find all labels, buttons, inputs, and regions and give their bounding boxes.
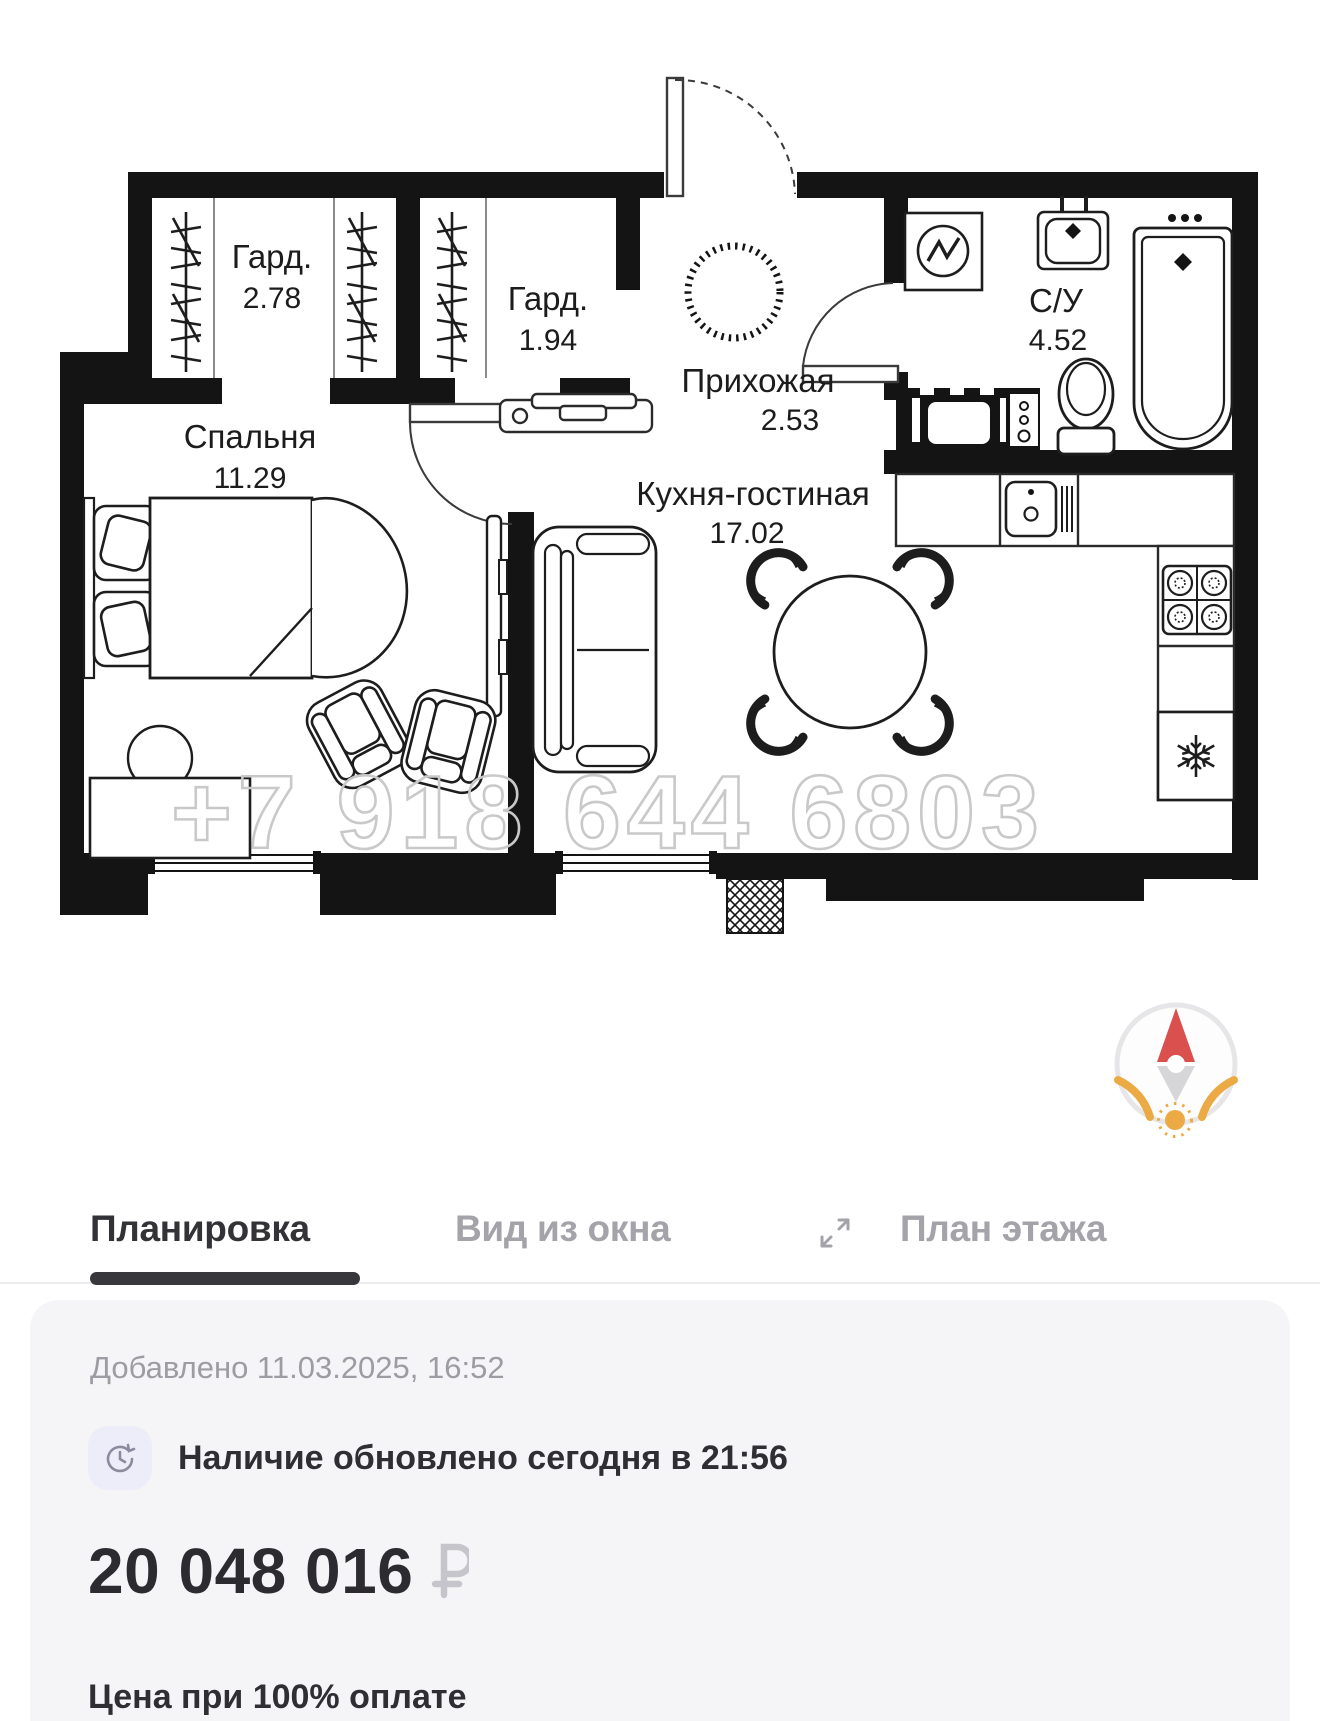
room-area: 2.53 — [761, 404, 819, 437]
tab-plan-etazha[interactable]: План этажа — [900, 1208, 1106, 1250]
room-label: Кухня-гостиная — [636, 475, 869, 512]
room-area: 1.94 — [519, 324, 577, 357]
gallery-tabs: Планировка Вид из окна План этажа — [0, 1196, 1320, 1300]
availability-row: Наличие обновлено сегодня в 21:56 — [88, 1426, 788, 1490]
room-label: Прихожая — [682, 362, 835, 399]
toilet — [1058, 359, 1114, 454]
room-label: Гард. — [232, 238, 312, 275]
active-tab-underline — [90, 1272, 360, 1285]
kitchen-sink — [1006, 482, 1072, 536]
console-table — [500, 394, 652, 432]
bed — [84, 498, 407, 678]
tab-vid-iz-okna[interactable]: Вид из окна — [455, 1208, 670, 1250]
price-value: 20 048 016 — [88, 1534, 413, 1608]
entrance-door — [667, 78, 795, 196]
washing-machine — [896, 388, 1040, 450]
fridge — [1158, 712, 1234, 800]
electrical-panel — [905, 213, 982, 290]
availability-text: Наличие обновлено сегодня в 21:56 — [178, 1439, 788, 1478]
price-note: Цена при 100% оплате — [88, 1678, 466, 1717]
clock-refresh-icon — [88, 1426, 152, 1490]
room-label: С/У — [1029, 282, 1084, 319]
compass-icon — [1117, 1005, 1235, 1137]
dining-table — [774, 576, 926, 728]
stove — [1163, 566, 1231, 634]
price-card: Добавлено 11.03.2025, 16:52 Наличие обно… — [30, 1300, 1290, 1721]
listing-page: Гард. 2.78 Гард. 1.94 Прихожая 2.53 С/У … — [0, 0, 1320, 1721]
bathroom-sink — [1038, 196, 1108, 269]
bathtub — [1134, 228, 1232, 449]
floor-plan-image[interactable]: Гард. 2.78 Гард. 1.94 Прихожая 2.53 С/У … — [0, 0, 1320, 1160]
bedroom-door — [410, 404, 512, 524]
room-area: 2.78 — [243, 282, 301, 315]
tv — [487, 516, 507, 716]
price-row: 20 048 016 — [88, 1534, 469, 1608]
vent-dots — [1168, 214, 1202, 222]
expand-icon[interactable] — [812, 1210, 858, 1256]
balcony-hatch — [727, 879, 783, 933]
added-date: Добавлено 11.03.2025, 16:52 — [90, 1350, 505, 1386]
room-label: Гард. — [508, 280, 588, 317]
ottoman — [688, 246, 780, 338]
sun-icon — [1165, 1110, 1185, 1130]
room-area: 4.52 — [1029, 324, 1087, 357]
watermark: +7 918 644 6803 — [171, 755, 1045, 871]
sofa — [533, 527, 656, 772]
room-area: 17.02 — [709, 517, 784, 550]
dining-set — [738, 540, 963, 765]
room-label: Спальня — [184, 418, 317, 455]
ruble-icon — [431, 1543, 469, 1604]
tab-planirovka[interactable]: Планировка — [90, 1208, 310, 1250]
hanger-rack — [171, 198, 486, 378]
room-area: 11.29 — [214, 462, 287, 495]
